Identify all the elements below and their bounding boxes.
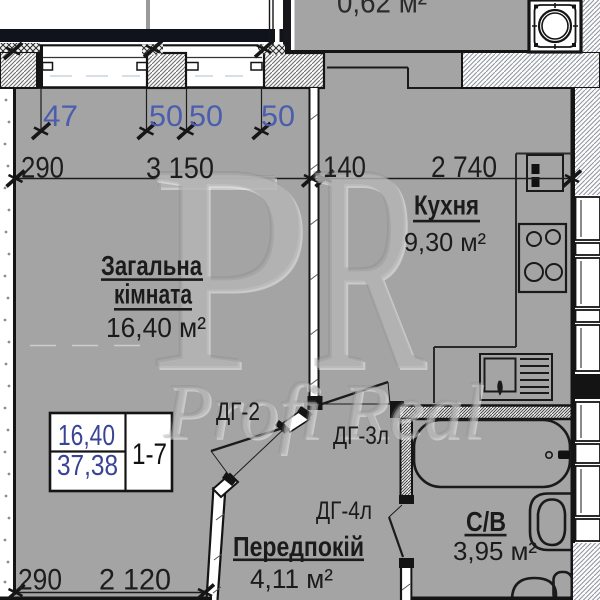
svg-text:Кухня: Кухня — [414, 190, 479, 221]
svg-text:ДГ-3л: ДГ-3л — [333, 422, 389, 450]
svg-text:47: 47 — [43, 100, 78, 133]
svg-text:50: 50 — [189, 100, 223, 133]
svg-text:16,40 м²: 16,40 м² — [106, 312, 206, 343]
svg-text:140: 140 — [323, 151, 366, 184]
svg-text:4,11 м²: 4,11 м² — [250, 564, 333, 594]
svg-text:Загальна: Загальна — [101, 250, 202, 281]
svg-text:1-7: 1-7 — [132, 438, 167, 471]
svg-text:290: 290 — [21, 152, 64, 185]
svg-text:кімната: кімната — [114, 279, 192, 310]
svg-text:16,40: 16,40 — [58, 420, 115, 452]
svg-text:ДГ-2: ДГ-2 — [216, 398, 260, 426]
svg-text:Передпокій: Передпокій — [233, 531, 364, 562]
svg-text:С/В: С/В — [466, 506, 506, 537]
svg-text:0,62 м²: 0,62 м² — [337, 0, 427, 20]
svg-text:3,95 м²: 3,95 м² — [453, 536, 537, 566]
svg-text:3 150: 3 150 — [146, 152, 214, 185]
svg-text:37,38: 37,38 — [57, 450, 118, 482]
svg-text:ДГ-4л: ДГ-4л — [316, 497, 372, 525]
svg-text:2 740: 2 740 — [431, 151, 497, 184]
svg-text:50: 50 — [149, 100, 183, 133]
svg-text:9,30 м²: 9,30 м² — [404, 227, 486, 257]
svg-text:2 120: 2 120 — [99, 564, 171, 597]
svg-text:290: 290 — [18, 564, 62, 597]
svg-text:Profi Real: Profi Real — [164, 368, 485, 455]
svg-text:50: 50 — [261, 100, 295, 133]
